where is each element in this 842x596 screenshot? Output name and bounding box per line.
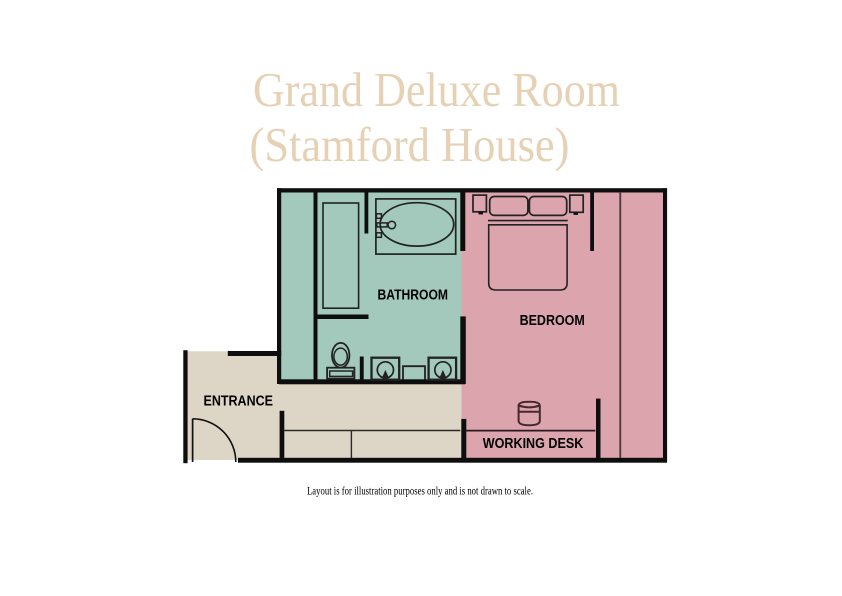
svg-text:Grand Deluxe Room: Grand Deluxe Room (253, 64, 620, 117)
svg-text:ENTRANCE: ENTRANCE (204, 394, 274, 410)
svg-text:(Stamford House): (Stamford House) (250, 119, 570, 172)
svg-text:WORKING DESK: WORKING DESK (483, 436, 584, 452)
svg-text:BATHROOM: BATHROOM (378, 287, 449, 303)
svg-text:BEDROOM: BEDROOM (520, 313, 585, 329)
svg-text:Layout is for illustration pur: Layout is for illustration purposes only… (307, 485, 533, 497)
